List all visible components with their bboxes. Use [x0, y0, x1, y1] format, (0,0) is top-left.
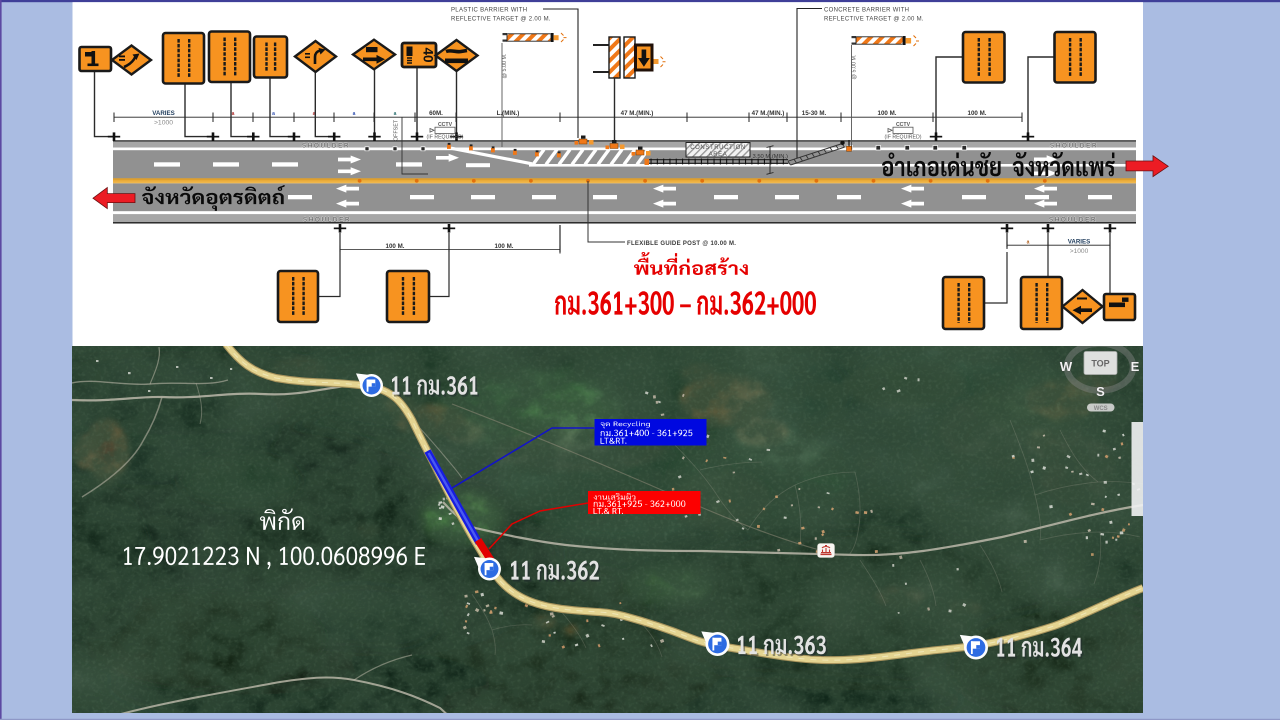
- svg-text:@ 5.00 M.: @ 5.00 M.: [852, 55, 858, 80]
- svg-text:TOP: TOP: [1091, 359, 1109, 369]
- svg-text:3.50 M.(MIN.): 3.50 M.(MIN.): [753, 154, 788, 160]
- svg-text:47 M.(MIN.): 47 M.(MIN.): [752, 110, 785, 117]
- svg-text:S: S: [1096, 384, 1105, 399]
- svg-text:FLEXIBLE GUIDE POST @ 10.00 M.: FLEXIBLE GUIDE POST @ 10.00 M.: [627, 241, 736, 247]
- svg-text:a: a: [353, 111, 356, 117]
- svg-text:@ 5.00 M.: @ 5.00 M.: [502, 54, 508, 79]
- svg-text:SHOULDER: SHOULDER: [302, 142, 350, 149]
- svg-text:SHOULDER: SHOULDER: [1050, 142, 1098, 149]
- svg-text:a: a: [272, 111, 275, 117]
- svg-text:L.(MIN.): L.(MIN.): [497, 110, 520, 117]
- svg-text:AREA: AREA: [709, 152, 728, 158]
- svg-text:60M.: 60M.: [429, 110, 443, 117]
- svg-text:VARIES: VARIES: [152, 110, 175, 117]
- svg-text:E: E: [1131, 359, 1140, 374]
- svg-text:(IF REQUIRED): (IF REQUIRED): [427, 134, 464, 140]
- svg-text:a: a: [394, 111, 397, 117]
- svg-text:CONSTRUCTION: CONSTRUCTION: [690, 145, 746, 151]
- svg-text:100 M.: 100 M.: [878, 110, 897, 117]
- svg-text:100 M.: 100 M.: [495, 243, 514, 250]
- svg-text:47 M.(MIN.): 47 M.(MIN.): [621, 110, 654, 117]
- svg-text:PLASTIC BARRIER WITH: PLASTIC BARRIER WITH: [451, 8, 527, 14]
- svg-text:(IF REQUIRED): (IF REQUIRED): [885, 134, 922, 140]
- svg-text:OFFSET: OFFSET: [394, 119, 400, 141]
- svg-text:REFLECTIVE TARGET @ 2.00 M.: REFLECTIVE TARGET @ 2.00 M.: [451, 17, 551, 23]
- svg-text:SHOULDER: SHOULDER: [1049, 216, 1097, 223]
- svg-text:a: a: [1027, 240, 1030, 246]
- svg-text:15-30 M.: 15-30 M.: [802, 110, 827, 117]
- svg-text:40: 40: [421, 47, 436, 62]
- svg-text:100 M.: 100 M.: [968, 110, 987, 117]
- svg-text:>1000: >1000: [1070, 248, 1089, 255]
- svg-text:>1000: >1000: [154, 120, 173, 127]
- svg-text:REFLECTIVE TARGET @ 2.00 M.: REFLECTIVE TARGET @ 2.00 M.: [824, 17, 924, 23]
- svg-text:SHOULDER: SHOULDER: [303, 216, 351, 223]
- svg-text:100 M.: 100 M.: [386, 243, 405, 250]
- svg-text:CONCRETE BARRIER WITH: CONCRETE BARRIER WITH: [824, 8, 909, 14]
- svg-text:VARIES: VARIES: [1068, 239, 1091, 246]
- svg-text:WCS: WCS: [1094, 406, 1108, 412]
- svg-text:a: a: [232, 111, 235, 117]
- svg-text:W: W: [1060, 359, 1073, 374]
